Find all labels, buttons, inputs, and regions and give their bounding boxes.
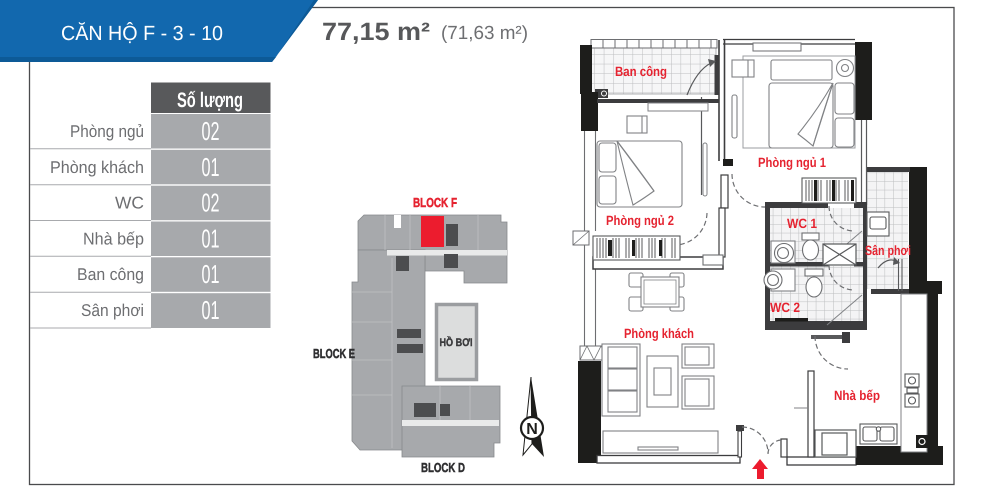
svg-text:Phòng khách: Phòng khách xyxy=(624,326,694,341)
svg-text:02: 02 xyxy=(202,188,220,218)
svg-text:BLOCK D: BLOCK D xyxy=(421,460,465,475)
svg-text:Số lượng: Số lượng xyxy=(177,89,243,112)
svg-text:Phòng khách: Phòng khách xyxy=(50,158,144,177)
svg-text:Sân phơi: Sân phơi xyxy=(865,243,911,258)
svg-text:Phòng ngủ 1: Phòng ngủ 1 xyxy=(758,155,826,170)
svg-text:02: 02 xyxy=(202,116,220,146)
svg-text:Ban công: Ban công xyxy=(615,64,667,79)
svg-text:WC 1: WC 1 xyxy=(787,216,817,231)
svg-text:HỒ BƠI: HỒ BƠI xyxy=(440,336,473,349)
svg-text:01: 01 xyxy=(202,223,220,253)
svg-text:01: 01 xyxy=(202,152,220,182)
svg-text:BLOCK F: BLOCK F xyxy=(413,195,457,210)
svg-text:N: N xyxy=(526,421,538,438)
svg-text:Sân phơi: Sân phơi xyxy=(81,301,144,320)
svg-text:BLOCK E: BLOCK E xyxy=(313,346,355,361)
svg-text:WC: WC xyxy=(115,194,144,213)
svg-text:Ban công: Ban công xyxy=(77,265,144,284)
svg-text:01: 01 xyxy=(202,259,220,289)
svg-text:77,15 m²: 77,15 m² xyxy=(322,18,430,46)
svg-text:Nhà bếp: Nhà bếp xyxy=(83,229,144,248)
svg-text:01: 01 xyxy=(202,295,220,325)
svg-text:Phòng ngủ: Phòng ngủ xyxy=(70,122,144,141)
svg-text:WC 2: WC 2 xyxy=(770,300,800,315)
svg-text:Phòng ngủ 2: Phòng ngủ 2 xyxy=(606,213,674,228)
svg-text:(71,63 m²): (71,63 m²) xyxy=(441,23,528,44)
svg-text:CĂN HỘ F - 3 - 10: CĂN HỘ F - 3 - 10 xyxy=(61,22,223,45)
svg-text:Nhà bếp: Nhà bếp xyxy=(834,388,880,403)
